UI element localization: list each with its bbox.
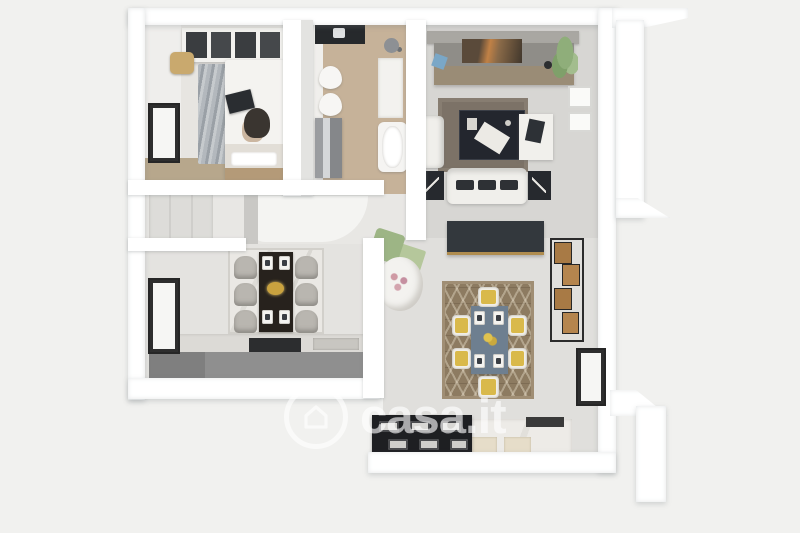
bedroom-hall-wall (128, 180, 384, 195)
person-on-bed (244, 108, 270, 138)
shelf-box (562, 312, 579, 334)
balcony-right-wall (616, 20, 644, 218)
sink-icon (544, 61, 552, 69)
dining-chair (508, 348, 527, 369)
dining-window (576, 348, 606, 406)
kitchen-chair (295, 310, 318, 333)
coffee-table (459, 110, 525, 160)
wardrobe (182, 28, 284, 62)
plant-flowers (387, 269, 411, 295)
table-decor-dot (505, 120, 511, 126)
side-unit-screen (525, 119, 545, 144)
shelf-box (562, 264, 580, 286)
centerpiece-gold (267, 282, 284, 295)
outer-wall-top (128, 8, 620, 25)
bedroom-window (148, 103, 180, 163)
living-window-lower (568, 112, 592, 132)
place-setting (262, 310, 273, 324)
hall-wall-stub (244, 194, 258, 244)
bedside-rug (198, 64, 226, 164)
table-decor-dot (467, 118, 477, 130)
place-setting (279, 256, 290, 270)
sofa-cushion (500, 180, 518, 190)
burner (450, 439, 468, 450)
kitchen-dining-wall (363, 238, 384, 398)
dining-chair (478, 287, 499, 307)
bathtub (378, 122, 407, 172)
side-table-deco (425, 177, 439, 193)
bathtub-basin (382, 126, 403, 168)
dining-bottom-wall (368, 452, 616, 473)
place-setting (474, 354, 485, 368)
hall-kitchen-wall (128, 238, 246, 251)
place-setting (262, 256, 273, 270)
kitchen-chair (234, 310, 257, 333)
dining-table (471, 306, 508, 374)
burner (379, 421, 399, 432)
house-icon (301, 402, 331, 432)
place-setting (474, 311, 485, 325)
kitchen-chair (295, 283, 318, 306)
shelf-box (554, 288, 572, 310)
hall-closet (149, 190, 213, 242)
wardrobe-panel (211, 32, 232, 58)
tv-panel (447, 221, 544, 255)
side-table-right (528, 171, 551, 200)
shower-head-icon (384, 38, 399, 53)
bathroom-vanity (315, 23, 365, 44)
window-pane (153, 108, 175, 158)
bed-pillow (231, 152, 277, 166)
kitchen-chair (295, 256, 318, 279)
shelf-box (554, 242, 572, 264)
dining-chair (452, 315, 471, 336)
floorplan-3d-render: casa.it (0, 0, 800, 533)
window-pane (153, 283, 175, 349)
kitchen-sink (313, 338, 359, 350)
shower-tray (378, 58, 403, 118)
place-setting (493, 311, 504, 325)
plant-living-icon (552, 36, 578, 78)
place-setting (279, 310, 290, 324)
magazine (474, 122, 510, 155)
dining-chair (452, 348, 471, 369)
sofa-cushion (456, 180, 474, 190)
burner (441, 421, 461, 432)
place-setting (493, 354, 504, 368)
sofa-cushion (478, 180, 496, 190)
dining-chair (478, 376, 499, 398)
cooktop-backsplash (462, 39, 522, 63)
bidet (319, 93, 342, 116)
counter-dark-inset (526, 417, 564, 427)
kitchen-chair (234, 256, 257, 279)
wardrobe-panel (235, 32, 256, 58)
wardrobe-panel (260, 32, 281, 58)
vanity-sink (333, 28, 345, 38)
bathroom-living-wall (406, 20, 426, 240)
outer-wall-left (128, 8, 145, 400)
burner (410, 421, 430, 432)
stool (170, 52, 194, 74)
kitchen-chair (234, 283, 257, 306)
ladder-shelf (550, 238, 584, 342)
burner (388, 439, 408, 450)
living-window-upper (568, 86, 592, 108)
kitchen-table (259, 252, 293, 332)
kitchen-hob (249, 338, 301, 352)
shower-column (315, 118, 342, 178)
centerpiece-flowers (482, 332, 497, 346)
side-table-deco (532, 177, 546, 193)
sofa (447, 168, 527, 204)
burner (419, 439, 439, 450)
kitchen-bottom-wall (128, 378, 380, 399)
bed-headboard (225, 168, 285, 180)
bedroom-bathroom-wall (283, 20, 313, 196)
toilet (319, 66, 342, 89)
window-pane (581, 353, 601, 401)
kitchen-window (148, 278, 180, 354)
side-unit-right (519, 114, 553, 160)
br-balcony-arm-v (636, 406, 666, 502)
dining-chair (508, 315, 527, 336)
